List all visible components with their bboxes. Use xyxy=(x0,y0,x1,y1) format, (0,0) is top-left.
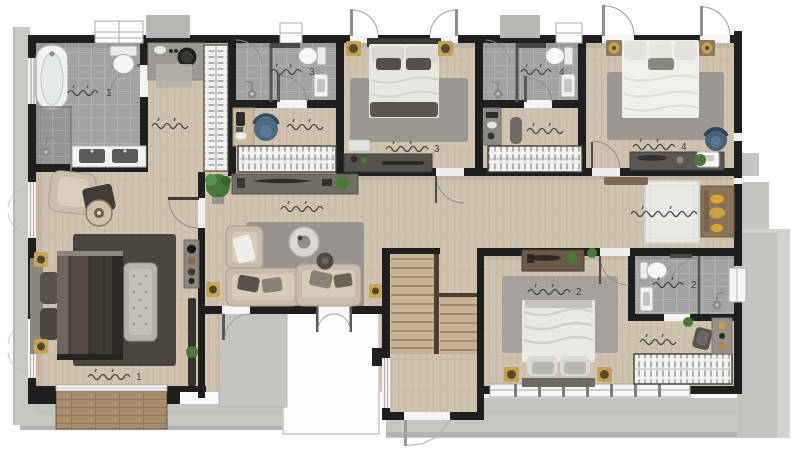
svg-text:1: 1 xyxy=(136,372,142,383)
svg-text:4: 4 xyxy=(559,67,565,78)
svg-text:2: 2 xyxy=(576,287,582,298)
svg-text:4: 4 xyxy=(681,142,687,153)
svg-text:3: 3 xyxy=(434,144,440,155)
svg-text:3: 3 xyxy=(309,67,315,78)
svg-text:2: 2 xyxy=(691,280,697,291)
svg-text:1: 1 xyxy=(106,88,112,99)
